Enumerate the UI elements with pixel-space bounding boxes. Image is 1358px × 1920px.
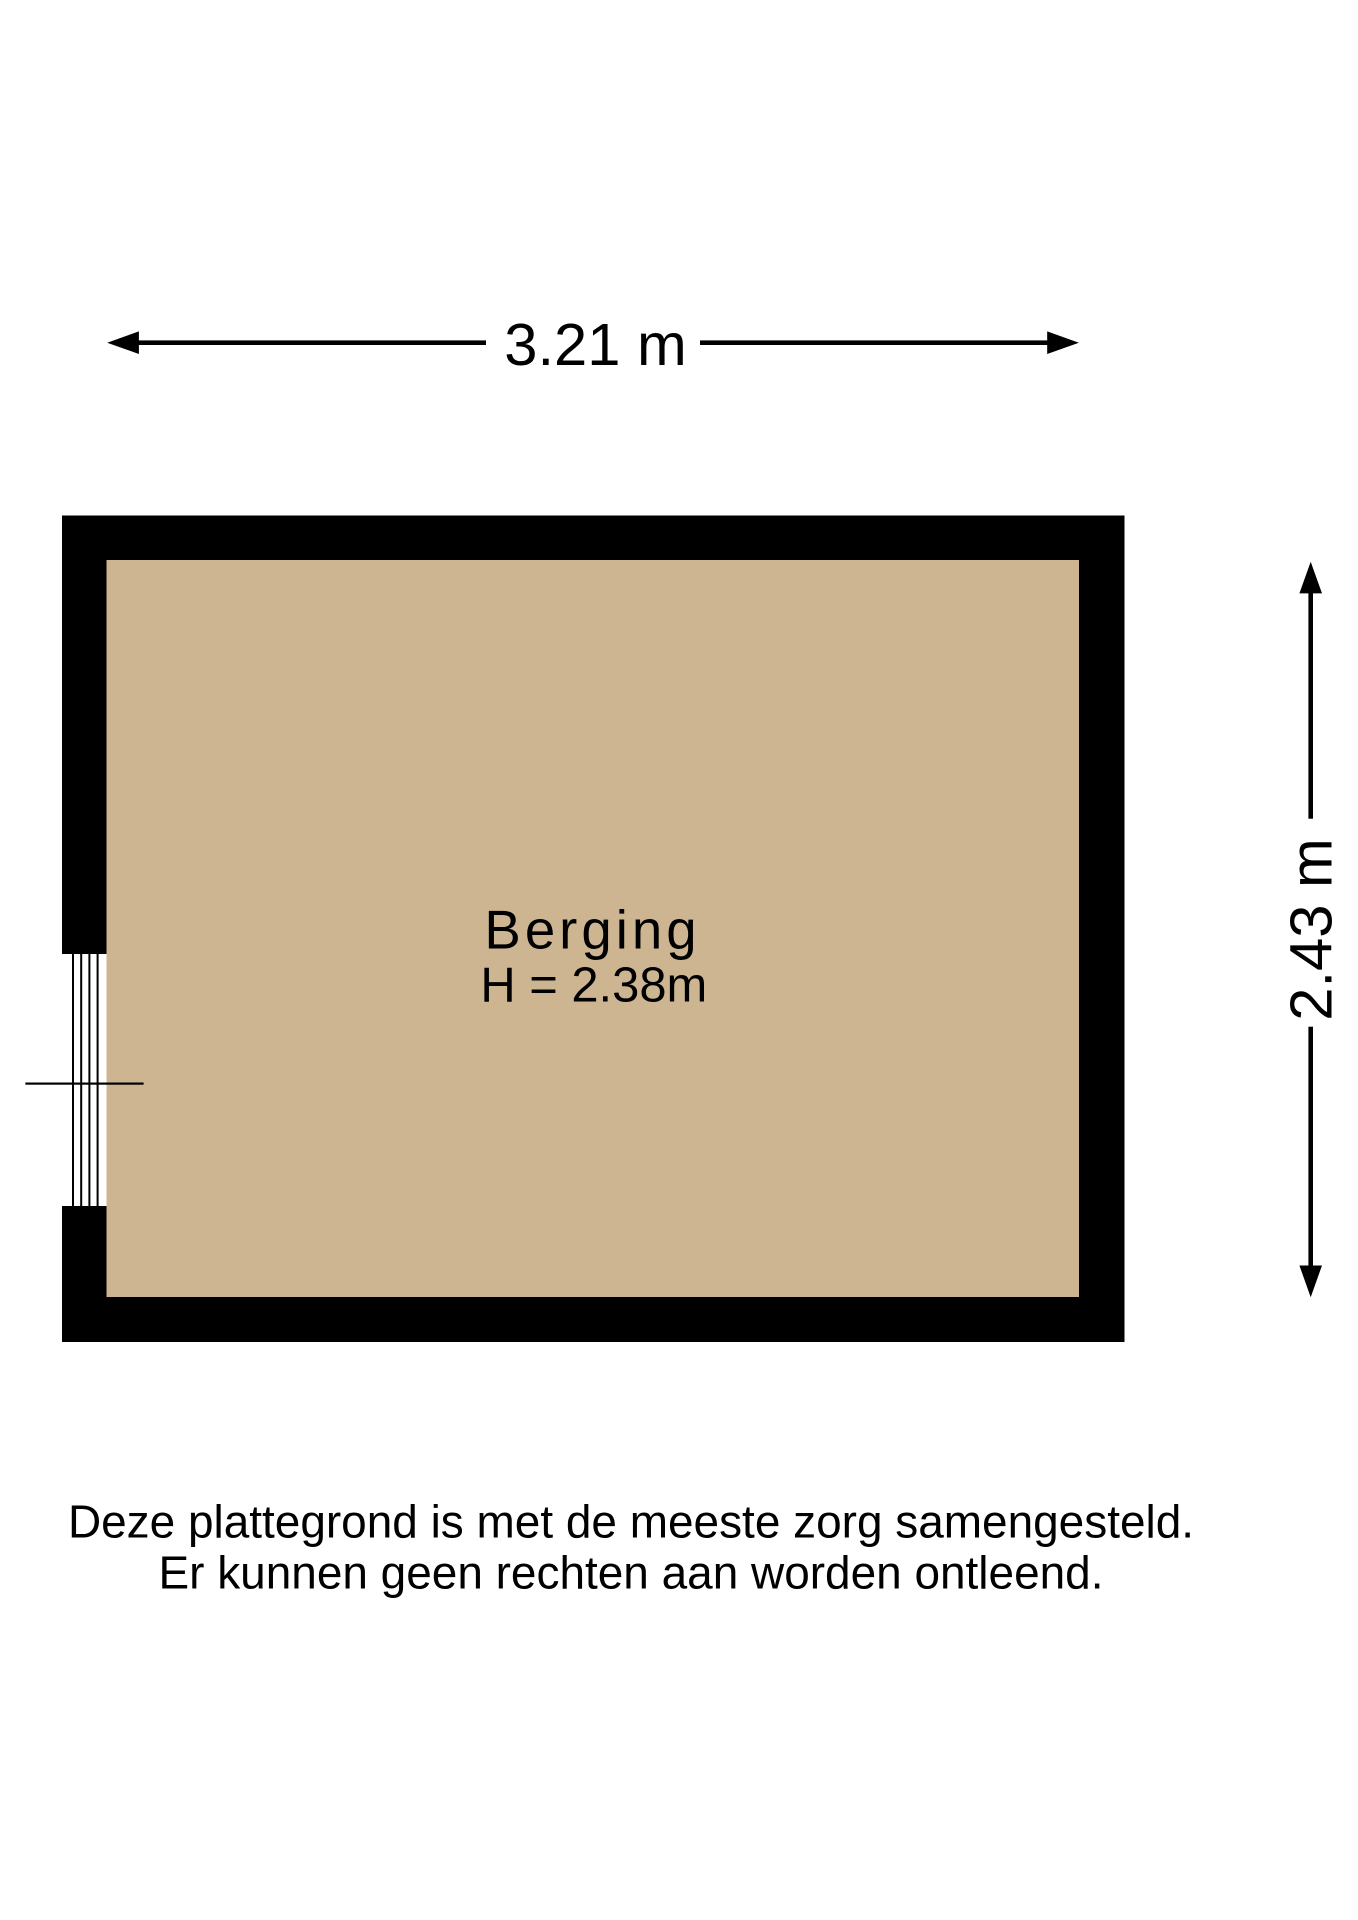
svg-text:H = 2.38m: H = 2.38m xyxy=(480,959,707,1013)
svg-text:Er kunnen geen rechten aan wor: Er kunnen geen rechten aan worden ontlee… xyxy=(159,1546,1104,1598)
svg-text:3.21 m: 3.21 m xyxy=(504,311,686,378)
svg-text:Deze plattegrond is met de mee: Deze plattegrond is met de meeste zorg s… xyxy=(68,1495,1194,1547)
svg-text:2.43 m: 2.43 m xyxy=(1278,838,1345,1020)
svg-text:Berging: Berging xyxy=(484,900,700,961)
